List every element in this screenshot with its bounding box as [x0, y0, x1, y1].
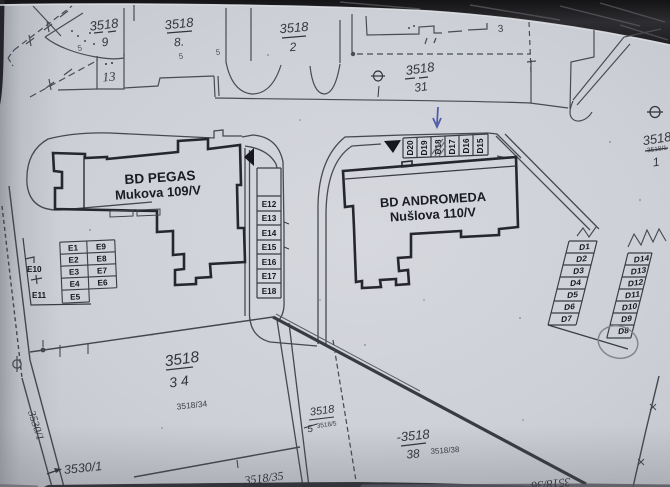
svg-text:D2: D2	[576, 253, 588, 264]
svg-text:D3: D3	[573, 265, 585, 276]
svg-text:D9: D9	[621, 313, 633, 324]
svg-text:13: 13	[102, 68, 117, 84]
svg-text:8.: 8.	[173, 35, 184, 50]
svg-text:E5: E5	[70, 292, 81, 301]
svg-text:E13: E13	[262, 214, 277, 223]
svg-text:E17: E17	[262, 272, 277, 281]
svg-text:E15: E15	[262, 243, 277, 252]
svg-text:E18: E18	[262, 287, 277, 296]
svg-text:E2: E2	[68, 255, 79, 264]
svg-text:D7: D7	[561, 313, 573, 324]
svg-text:D4: D4	[570, 277, 582, 288]
svg-text:E12: E12	[262, 200, 277, 209]
svg-text:3518: 3518	[164, 14, 195, 32]
svg-text:E14: E14	[262, 229, 277, 238]
svg-text:E4: E4	[69, 279, 80, 288]
svg-text:E3: E3	[69, 267, 80, 276]
svg-text:E9: E9	[96, 242, 107, 251]
svg-text:31: 31	[413, 79, 428, 95]
svg-text:D16: D16	[462, 138, 471, 153]
svg-text:D17: D17	[448, 139, 457, 154]
svg-text:2: 2	[288, 40, 297, 55]
svg-text:D6: D6	[564, 301, 576, 312]
svg-text:E10: E10	[27, 265, 42, 274]
svg-text:D20: D20	[406, 140, 415, 155]
svg-text:E6: E6	[97, 278, 108, 287]
svg-text:E1: E1	[68, 243, 79, 252]
svg-text:D19: D19	[420, 140, 429, 155]
svg-text:D5: D5	[567, 289, 579, 300]
svg-text:38: 38	[406, 446, 421, 461]
svg-text:E7: E7	[97, 266, 108, 275]
svg-text:3518: 3518	[279, 19, 310, 37]
svg-text:34: 34	[168, 371, 194, 390]
svg-text:D15: D15	[476, 138, 485, 153]
svg-text:D1: D1	[579, 241, 591, 252]
svg-text:E8: E8	[96, 254, 107, 263]
svg-text:E16: E16	[262, 258, 277, 267]
svg-text:E11: E11	[32, 291, 47, 300]
